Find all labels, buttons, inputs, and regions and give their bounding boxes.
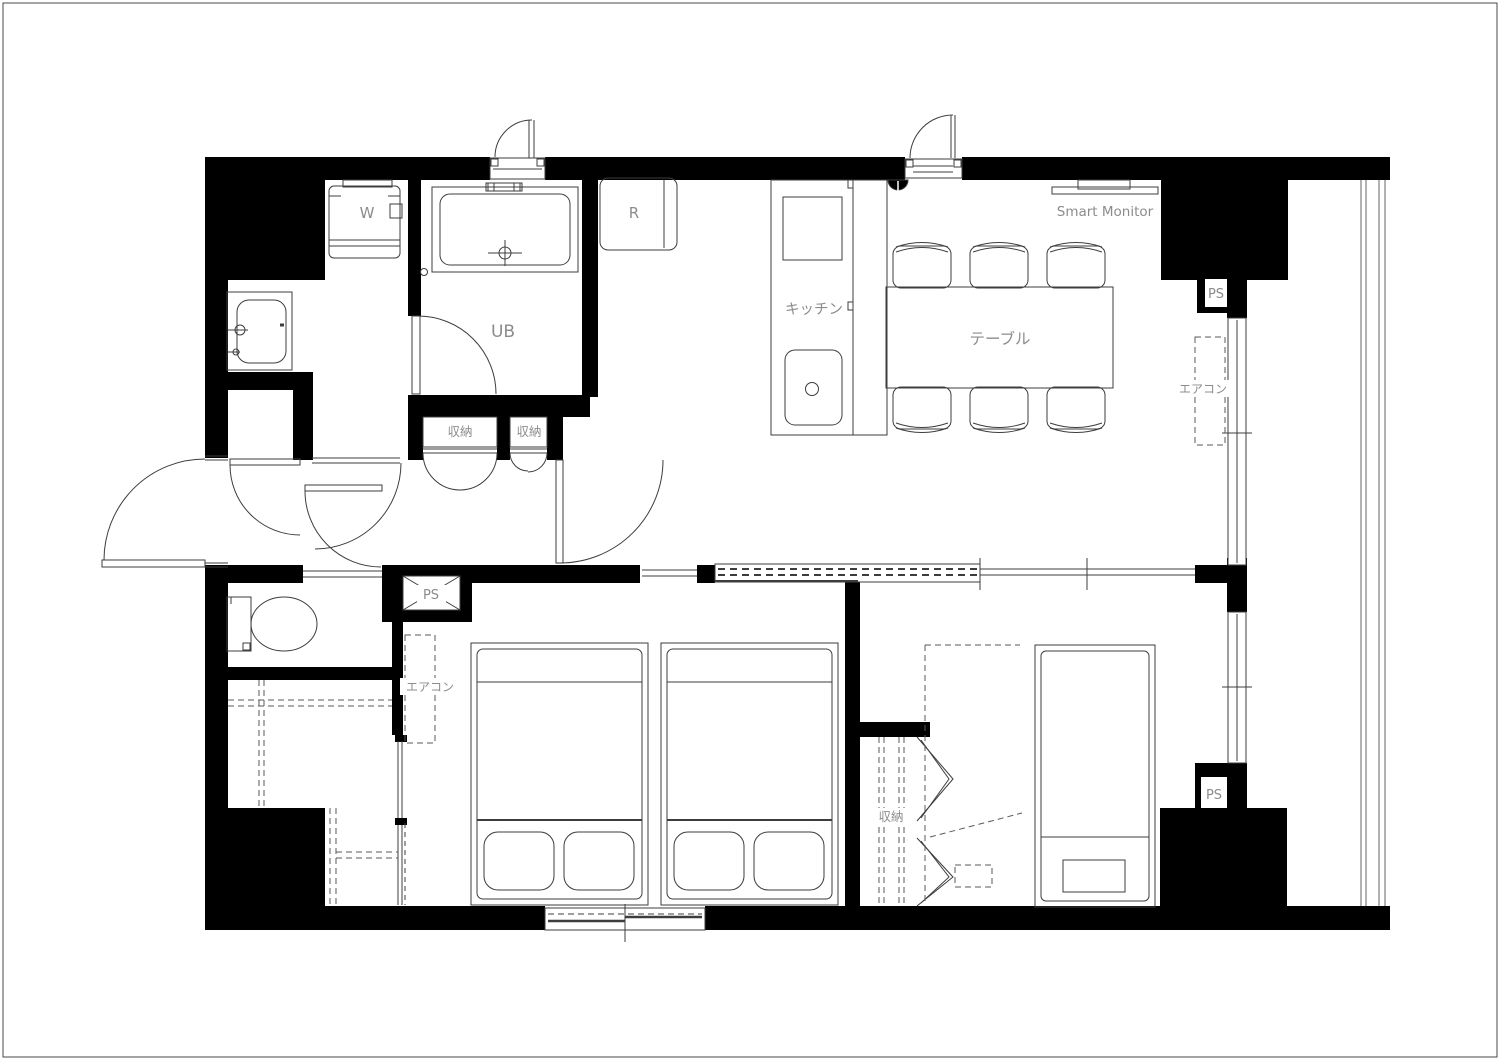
living-aircon-label: エアコン xyxy=(1179,382,1227,396)
lower-right-ps-label: PS xyxy=(1206,788,1222,803)
upper-right-ps-label: PS xyxy=(1208,287,1224,302)
hall-closet-right-label: 収納 xyxy=(516,424,541,439)
kitchen-label: キッチン xyxy=(785,302,843,318)
bedroom1-aircon-label: エアコン xyxy=(406,680,454,694)
smart-monitor-label: Smart Monitor xyxy=(1057,204,1154,220)
bedroom2-closet-label: 収納 xyxy=(878,809,903,824)
living-top-door-frame-icon xyxy=(905,159,962,178)
unit-bath-label: UB xyxy=(491,322,515,342)
living-aircon-label-group: エアコン xyxy=(1173,380,1233,397)
hall-ps-label: PS xyxy=(423,588,439,603)
refrigerator-label: R xyxy=(629,204,639,222)
washing-machine-label: W xyxy=(360,204,375,222)
bedroom2-closet-label-group: 収納 xyxy=(874,808,908,825)
floor-plan-drawing: W R UB 収納 収納 キッチン テーブル Smart Monitor PS … xyxy=(0,0,1500,1060)
bedroom1-aircon-label-group: エアコン xyxy=(400,678,460,695)
floor-plan-page: W R UB 収納 収納 キッチン テーブル Smart Monitor PS … xyxy=(0,0,1500,1060)
bathroom-window-icon xyxy=(490,158,545,179)
dining-table-label: テーブル xyxy=(969,329,1030,348)
hall-closet-left-label: 収納 xyxy=(447,424,472,439)
